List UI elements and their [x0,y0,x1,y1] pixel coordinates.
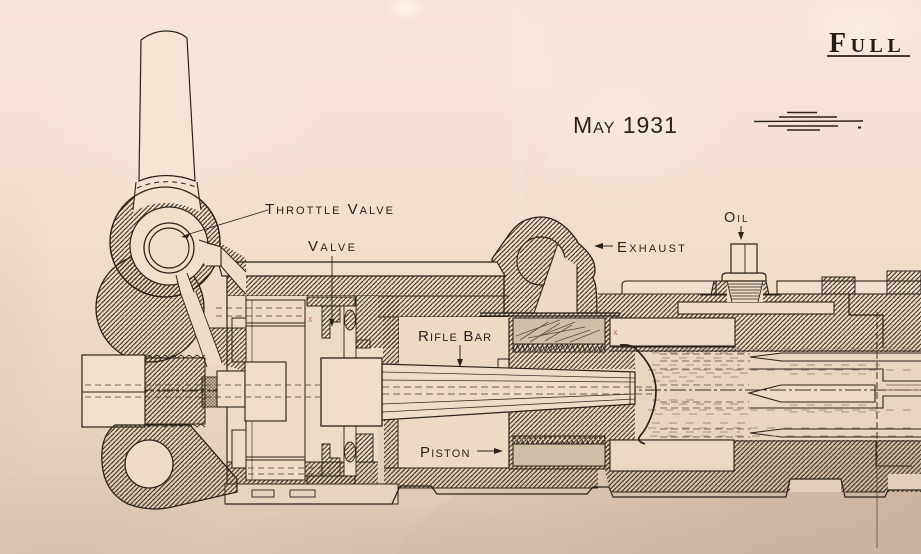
svg-text:Full: Full [829,28,905,59]
svg-text:Throttle Valve: Throttle Valve [265,201,395,218]
svg-text:x: x [613,327,618,337]
svg-text:May 1931: May 1931 [573,112,678,138]
svg-text:x: x [308,314,313,324]
svg-text:Rifle Bar: Rifle Bar [418,328,492,345]
svg-text:Oil: Oil [724,210,750,226]
svg-text:Piston: Piston [420,444,471,461]
svg-text:Valve: Valve [308,238,357,255]
svg-text:Exhaust: Exhaust [617,239,687,256]
